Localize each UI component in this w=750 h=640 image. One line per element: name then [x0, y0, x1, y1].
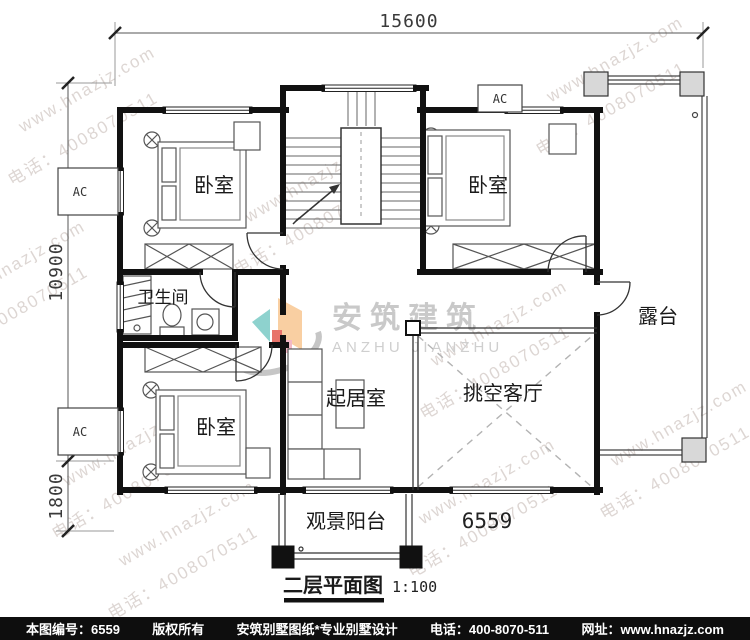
room-label-terrace: 露台	[638, 305, 678, 328]
footer-brand: 安筑别墅图纸*专业别墅设计	[237, 619, 398, 638]
wardrobe	[145, 244, 233, 269]
plan-number: 6559	[462, 509, 513, 533]
furniture-living-room	[288, 349, 364, 479]
dim-balcony-depth: 1800	[46, 472, 67, 519]
toilet	[160, 304, 184, 336]
room-label-bathroom: 卫生间	[138, 288, 189, 307]
dim-total-width: 15600	[379, 11, 438, 32]
footer-plan-no: 本图编号：6559	[26, 619, 120, 638]
furniture-bedroom-bottomleft	[143, 347, 270, 480]
room-label-bedroom: 卧室	[196, 416, 236, 439]
terrace-drain-icon	[693, 113, 698, 118]
footer-copyright: 版权所有	[152, 619, 204, 638]
balcony-columns	[272, 546, 422, 568]
door-bathroom	[200, 272, 235, 307]
room-label-void-living: 挑空客厅	[463, 382, 543, 405]
staircase	[286, 92, 420, 228]
room-label-balcony: 观景阳台	[306, 510, 386, 533]
title-underline	[284, 598, 384, 603]
ac-unit-box	[58, 168, 118, 215]
ac-label: AC	[73, 185, 87, 199]
stair-direction-arrow	[296, 186, 338, 221]
drawing-scale: 1:100	[392, 578, 437, 596]
ac-label: AC	[493, 92, 507, 106]
sink	[192, 309, 219, 335]
furniture-bedroom-topright	[423, 124, 595, 269]
floor-plan-svg: 15600 10900 1800	[0, 0, 750, 640]
dimension-left	[56, 77, 114, 537]
terrace-columns	[584, 72, 706, 462]
floor-plan-page: www.hnazjz.com电话：4008070511 www.hnazjz.c…	[0, 0, 750, 640]
room-label-bedroom: 卧室	[194, 174, 234, 197]
dresser	[234, 122, 260, 150]
void-diagonals	[418, 336, 592, 487]
dresser	[246, 448, 270, 478]
wardrobe	[145, 347, 261, 372]
room-label-bedroom: 卧室	[468, 174, 508, 197]
wardrobe	[453, 244, 595, 269]
ac-label: AC	[73, 425, 87, 439]
footer-phone: 电话：400-8070-511	[430, 619, 549, 638]
room-label-living: 起居室	[326, 387, 386, 410]
terrace-parapet	[597, 76, 707, 455]
door-bedroom-topleft	[247, 233, 283, 269]
dresser	[549, 124, 576, 154]
railing-post	[406, 321, 420, 335]
ac-unit-box	[58, 408, 118, 455]
footer-website: 网址：www.hnazjz.com	[581, 619, 724, 638]
void-railing	[406, 321, 597, 490]
door-terrace	[597, 282, 630, 315]
drawing-title: 二层平面图	[283, 574, 383, 597]
sofa	[288, 349, 322, 449]
dim-main-depth: 10900	[46, 242, 67, 301]
footer-bar: 本图编号：6559 版权所有 安筑别墅图纸*专业别墅设计 电话：400-8070…	[0, 617, 750, 640]
